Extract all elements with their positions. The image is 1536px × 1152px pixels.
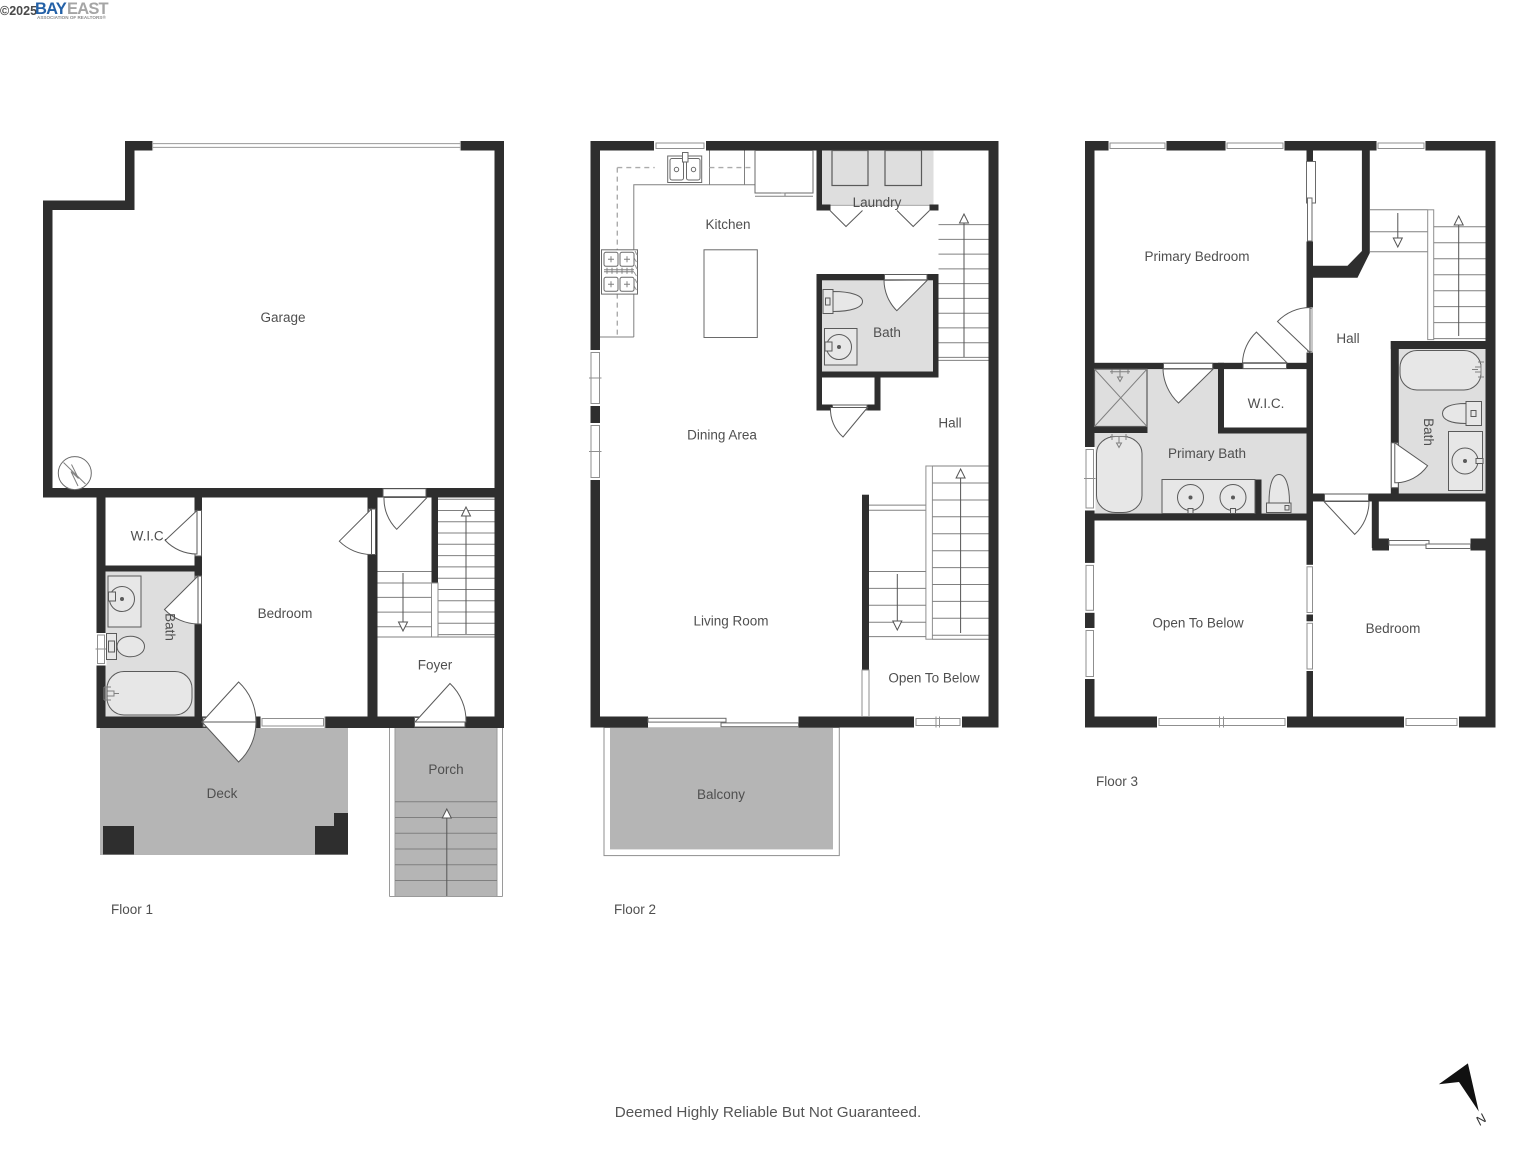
- svg-text:ASSOCIATION OF REALTORS®: ASSOCIATION OF REALTORS®: [37, 14, 106, 20]
- svg-text:Bedroom: Bedroom: [258, 606, 313, 621]
- svg-text:Deemed Highly Reliable But Not: Deemed Highly Reliable But Not Guarantee…: [615, 1104, 921, 1121]
- svg-text:Floor 2: Floor 2: [614, 902, 656, 917]
- svg-text:Dining Area: Dining Area: [687, 428, 757, 443]
- svg-text:Bath: Bath: [163, 613, 178, 641]
- svg-text:Bath: Bath: [1421, 418, 1436, 446]
- svg-text:Garage: Garage: [260, 310, 305, 325]
- svg-text:Kitchen: Kitchen: [705, 217, 750, 232]
- svg-text:Deck: Deck: [207, 786, 238, 801]
- svg-text:Living Room: Living Room: [693, 614, 768, 629]
- svg-text:W.I.C.: W.I.C.: [131, 529, 168, 544]
- svg-text:Porch: Porch: [428, 762, 463, 777]
- svg-text:Open To Below: Open To Below: [888, 671, 980, 686]
- svg-text:Bath: Bath: [873, 325, 901, 340]
- svg-text:Floor 3: Floor 3: [1096, 774, 1138, 789]
- svg-text:W.I.C.: W.I.C.: [1248, 396, 1285, 411]
- svg-text:Open To Below: Open To Below: [1152, 616, 1244, 631]
- svg-text:Primary Bedroom: Primary Bedroom: [1144, 249, 1249, 264]
- svg-text:Laundry: Laundry: [853, 195, 902, 210]
- svg-text:Primary Bath: Primary Bath: [1168, 446, 1246, 461]
- svg-text:Hall: Hall: [938, 416, 961, 431]
- svg-text:Floor 1: Floor 1: [111, 902, 153, 917]
- svg-text:Bedroom: Bedroom: [1366, 621, 1421, 636]
- svg-text:©2025: ©2025: [0, 4, 37, 18]
- svg-text:Balcony: Balcony: [697, 787, 745, 802]
- svg-text:Hall: Hall: [1336, 331, 1359, 346]
- svg-text:Foyer: Foyer: [418, 658, 453, 673]
